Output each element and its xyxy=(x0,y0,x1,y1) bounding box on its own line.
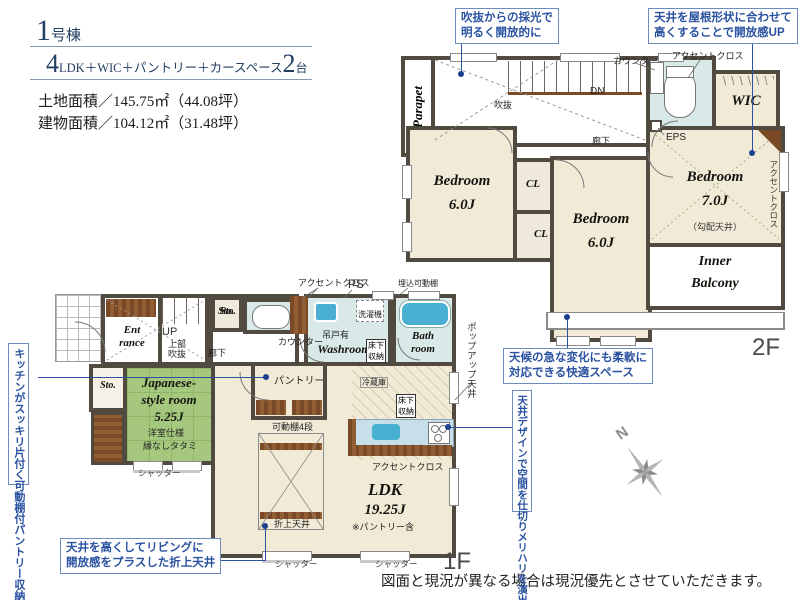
label-sto-1-text: Sto. xyxy=(214,306,242,318)
window xyxy=(372,291,394,300)
callout-balcony-weather: 天候の急な変化にも柔軟に 対応できる快適スペース xyxy=(503,348,653,384)
label-upper-void-1: 上部 xyxy=(168,339,186,349)
connector-dot xyxy=(445,424,451,430)
callout-roof-ceiling-line1: 天井を屋根形状に合わせて xyxy=(654,11,792,26)
label-shelf4: 可動棚4段 xyxy=(272,422,313,432)
label-coffered: 折上天井 xyxy=(274,519,310,529)
washbasin-icon xyxy=(314,302,338,322)
label-bath-2: room xyxy=(398,343,448,356)
label-underfloor-1: 床下 収納 xyxy=(366,339,386,363)
coffered-bar-top xyxy=(260,443,322,450)
callout-coffered-ceiling: 天井を高くしてリビングに 開放感をプラスした折上天井 xyxy=(60,538,221,574)
building-number-label: 号棟 xyxy=(51,28,81,44)
label-sto-2: Sto. xyxy=(93,380,123,392)
pantry-shelves xyxy=(256,400,286,415)
label-jroom-size: 5.25J xyxy=(127,409,211,425)
label-fridge: 冷蔵庫 xyxy=(360,377,388,388)
label-eps: EPS xyxy=(666,132,686,144)
building-area: 建物面積／104.12㎡（31.48坪） xyxy=(38,112,248,133)
underfloor-2-line2: 収納 xyxy=(398,406,414,417)
label-popup-ceiling: ポップアップ天井 xyxy=(464,322,475,408)
label-corridor-2f: 廊下 xyxy=(592,136,610,146)
header-block: 1号棟 xyxy=(36,14,326,48)
connector xyxy=(567,318,568,348)
label-balcony-1: Inner xyxy=(650,254,780,271)
window xyxy=(408,291,440,300)
underfloor-1-line2: 収納 xyxy=(368,351,384,362)
label-bedroom-left-size: 6.0J xyxy=(412,196,512,214)
compass-n-label: N xyxy=(613,423,632,443)
label-jroom-2: style room xyxy=(127,392,211,408)
toilet-1f-icon xyxy=(252,305,290,329)
window xyxy=(450,53,497,62)
label-void-2f: 吹抜 xyxy=(494,100,512,110)
kitchen-sink-icon xyxy=(372,424,400,440)
connector-dot xyxy=(749,150,755,156)
connector-dot xyxy=(263,374,269,380)
layout-tail: 台 xyxy=(296,61,308,75)
accent-wall-1f xyxy=(290,296,308,334)
layout-mid: LDK＋WIC＋パントリー＋カースペース xyxy=(59,61,283,75)
label-bedroom-right: Bedroom xyxy=(650,168,780,186)
window xyxy=(600,336,636,346)
label-recessed-shelf: 埋込可動棚 xyxy=(398,279,438,288)
label-shutter-3: シャッター xyxy=(375,560,418,570)
label-underfloor-2: 床下 収納 xyxy=(396,394,416,418)
label-ldk: LDK xyxy=(340,480,430,500)
floor-1f-label: 1F xyxy=(443,548,471,576)
label-slope-ceiling: （勾配天井） xyxy=(688,222,742,232)
underfloor-2-line1: 床下 xyxy=(398,395,414,406)
header-rule-1 xyxy=(30,46,312,47)
label-ldk-note: ※パントリー含 xyxy=(352,522,414,532)
toilet-2f-icon xyxy=(664,72,696,118)
floorplan-page: 1号棟 4LDK＋WIC＋パントリー＋カースペース2台 土地面積／145.75㎡… xyxy=(0,0,800,600)
pantry-shelves-2 xyxy=(292,400,322,415)
balcony-rail xyxy=(546,312,785,330)
counter-2f-icon xyxy=(650,62,664,94)
label-hang-door: 吊戸有 xyxy=(322,330,349,340)
connector xyxy=(38,377,266,378)
connector-dot xyxy=(262,523,268,529)
callout-void-light: 吹抜からの採光で 明るく開放的に xyxy=(455,8,559,44)
bathtub-icon xyxy=(400,301,450,327)
label-accent-2f-side: アクセントクロス xyxy=(768,160,778,252)
layout-line: 4LDK＋WIC＋パントリー＋カースペース2台 xyxy=(46,49,312,79)
label-corridor-1f: 廊下 xyxy=(208,348,226,358)
callout-roof-ceiling: 天井を屋根形状に合わせて 高くすることで開放感UP xyxy=(648,8,798,44)
label-bedroom-mid-size: 6.0J xyxy=(552,234,650,252)
kitchen-counter-edge-l xyxy=(348,419,356,456)
window xyxy=(556,336,590,346)
callout-pantry-storage: キッチンがスッキリ片付く可動棚付パントリー収納 xyxy=(8,343,29,485)
floor-2f-label: 2F xyxy=(752,334,780,362)
callout-roof-ceiling-line2: 高くすることで開放感UP xyxy=(654,26,792,41)
label-bedroom-mid: Bedroom xyxy=(552,210,650,228)
callout-coffered-line2: 開放感をプラスした折上天井 xyxy=(66,556,215,571)
label-bedroom-right-size: 7.0J xyxy=(650,192,780,210)
label-ps: PS xyxy=(348,278,364,292)
building-number-big: 1 xyxy=(36,14,51,47)
window xyxy=(402,222,412,252)
underfloor-1-line1: 床下 xyxy=(368,340,384,351)
label-accent-2f-top: アクセントクロス xyxy=(672,51,744,61)
connector-dot xyxy=(458,71,464,77)
wood-deck xyxy=(91,412,125,465)
porch-tiles xyxy=(55,294,105,362)
callout-balcony-weather-line2: 対応できる快適スペース xyxy=(509,366,647,381)
window xyxy=(449,372,459,404)
window xyxy=(779,152,789,192)
connector xyxy=(752,40,753,153)
header-rule-2 xyxy=(30,79,312,80)
label-entrance-1: Ent xyxy=(104,324,160,337)
connector-dot xyxy=(564,314,570,320)
room-bedroom-left xyxy=(406,126,517,262)
connector xyxy=(461,40,462,74)
compass-icon xyxy=(610,435,680,509)
label-shutter-2: シャッター xyxy=(275,560,318,570)
label-cl-1: CL xyxy=(518,178,548,191)
label-washer: 洗濯機 xyxy=(358,310,382,319)
callout-coffered-line1: 天井を高くしてリビングに xyxy=(66,541,215,556)
label-balcony-2: Balcony xyxy=(650,276,780,293)
label-up: UP xyxy=(162,326,177,339)
shoe-cabinet xyxy=(106,299,156,317)
label-counter-2f: カウンター xyxy=(613,56,658,66)
layout-4: 4 xyxy=(46,49,59,78)
label-bath-1: Bath xyxy=(398,330,448,343)
label-bedroom-left: Bedroom xyxy=(412,172,512,190)
label-ldk-size: 19.25J xyxy=(340,501,430,519)
label-entrance-2: rance xyxy=(104,337,160,350)
label-wic: WIC xyxy=(722,92,770,110)
stairs-1f xyxy=(162,298,205,324)
label-jroom-note2: 縁なしタタミ xyxy=(143,441,197,451)
eps-box xyxy=(650,120,662,132)
land-area: 土地面積／145.75㎡（44.08坪） xyxy=(38,90,248,111)
connector xyxy=(450,427,512,428)
kitchen-counter-edge xyxy=(355,445,452,456)
label-shutter-1: シャッター xyxy=(138,469,181,479)
label-pantry: パントリー xyxy=(274,376,325,388)
callout-void-light-line1: 吹抜からの採光で xyxy=(461,11,553,26)
window xyxy=(560,53,620,62)
label-dn: DN xyxy=(590,86,604,98)
callout-void-light-line2: 明るく開放的に xyxy=(461,26,553,41)
window xyxy=(449,468,459,506)
disclaimer-text: 図面と現況が異なる場合は現況優先とさせていただきます。 xyxy=(381,570,771,591)
connector xyxy=(265,527,266,561)
toilet-2f-tank xyxy=(666,66,694,78)
label-upper-void-2: 吹抜 xyxy=(168,349,186,359)
label-jroom-note1: 洋室仕様 xyxy=(148,428,184,438)
callout-ceiling-design: 天井デザインで空間を仕切りメリハリを演出 xyxy=(512,390,532,512)
parapet-label: Parapet xyxy=(410,86,426,128)
layout-2: 2 xyxy=(283,49,296,78)
coffered-bar-bottom xyxy=(260,512,322,519)
window xyxy=(402,165,412,199)
label-accent-kitchen: アクセントクロス xyxy=(372,462,444,472)
callout-balcony-weather-line1: 天候の急な変化にも柔軟に xyxy=(509,351,647,366)
